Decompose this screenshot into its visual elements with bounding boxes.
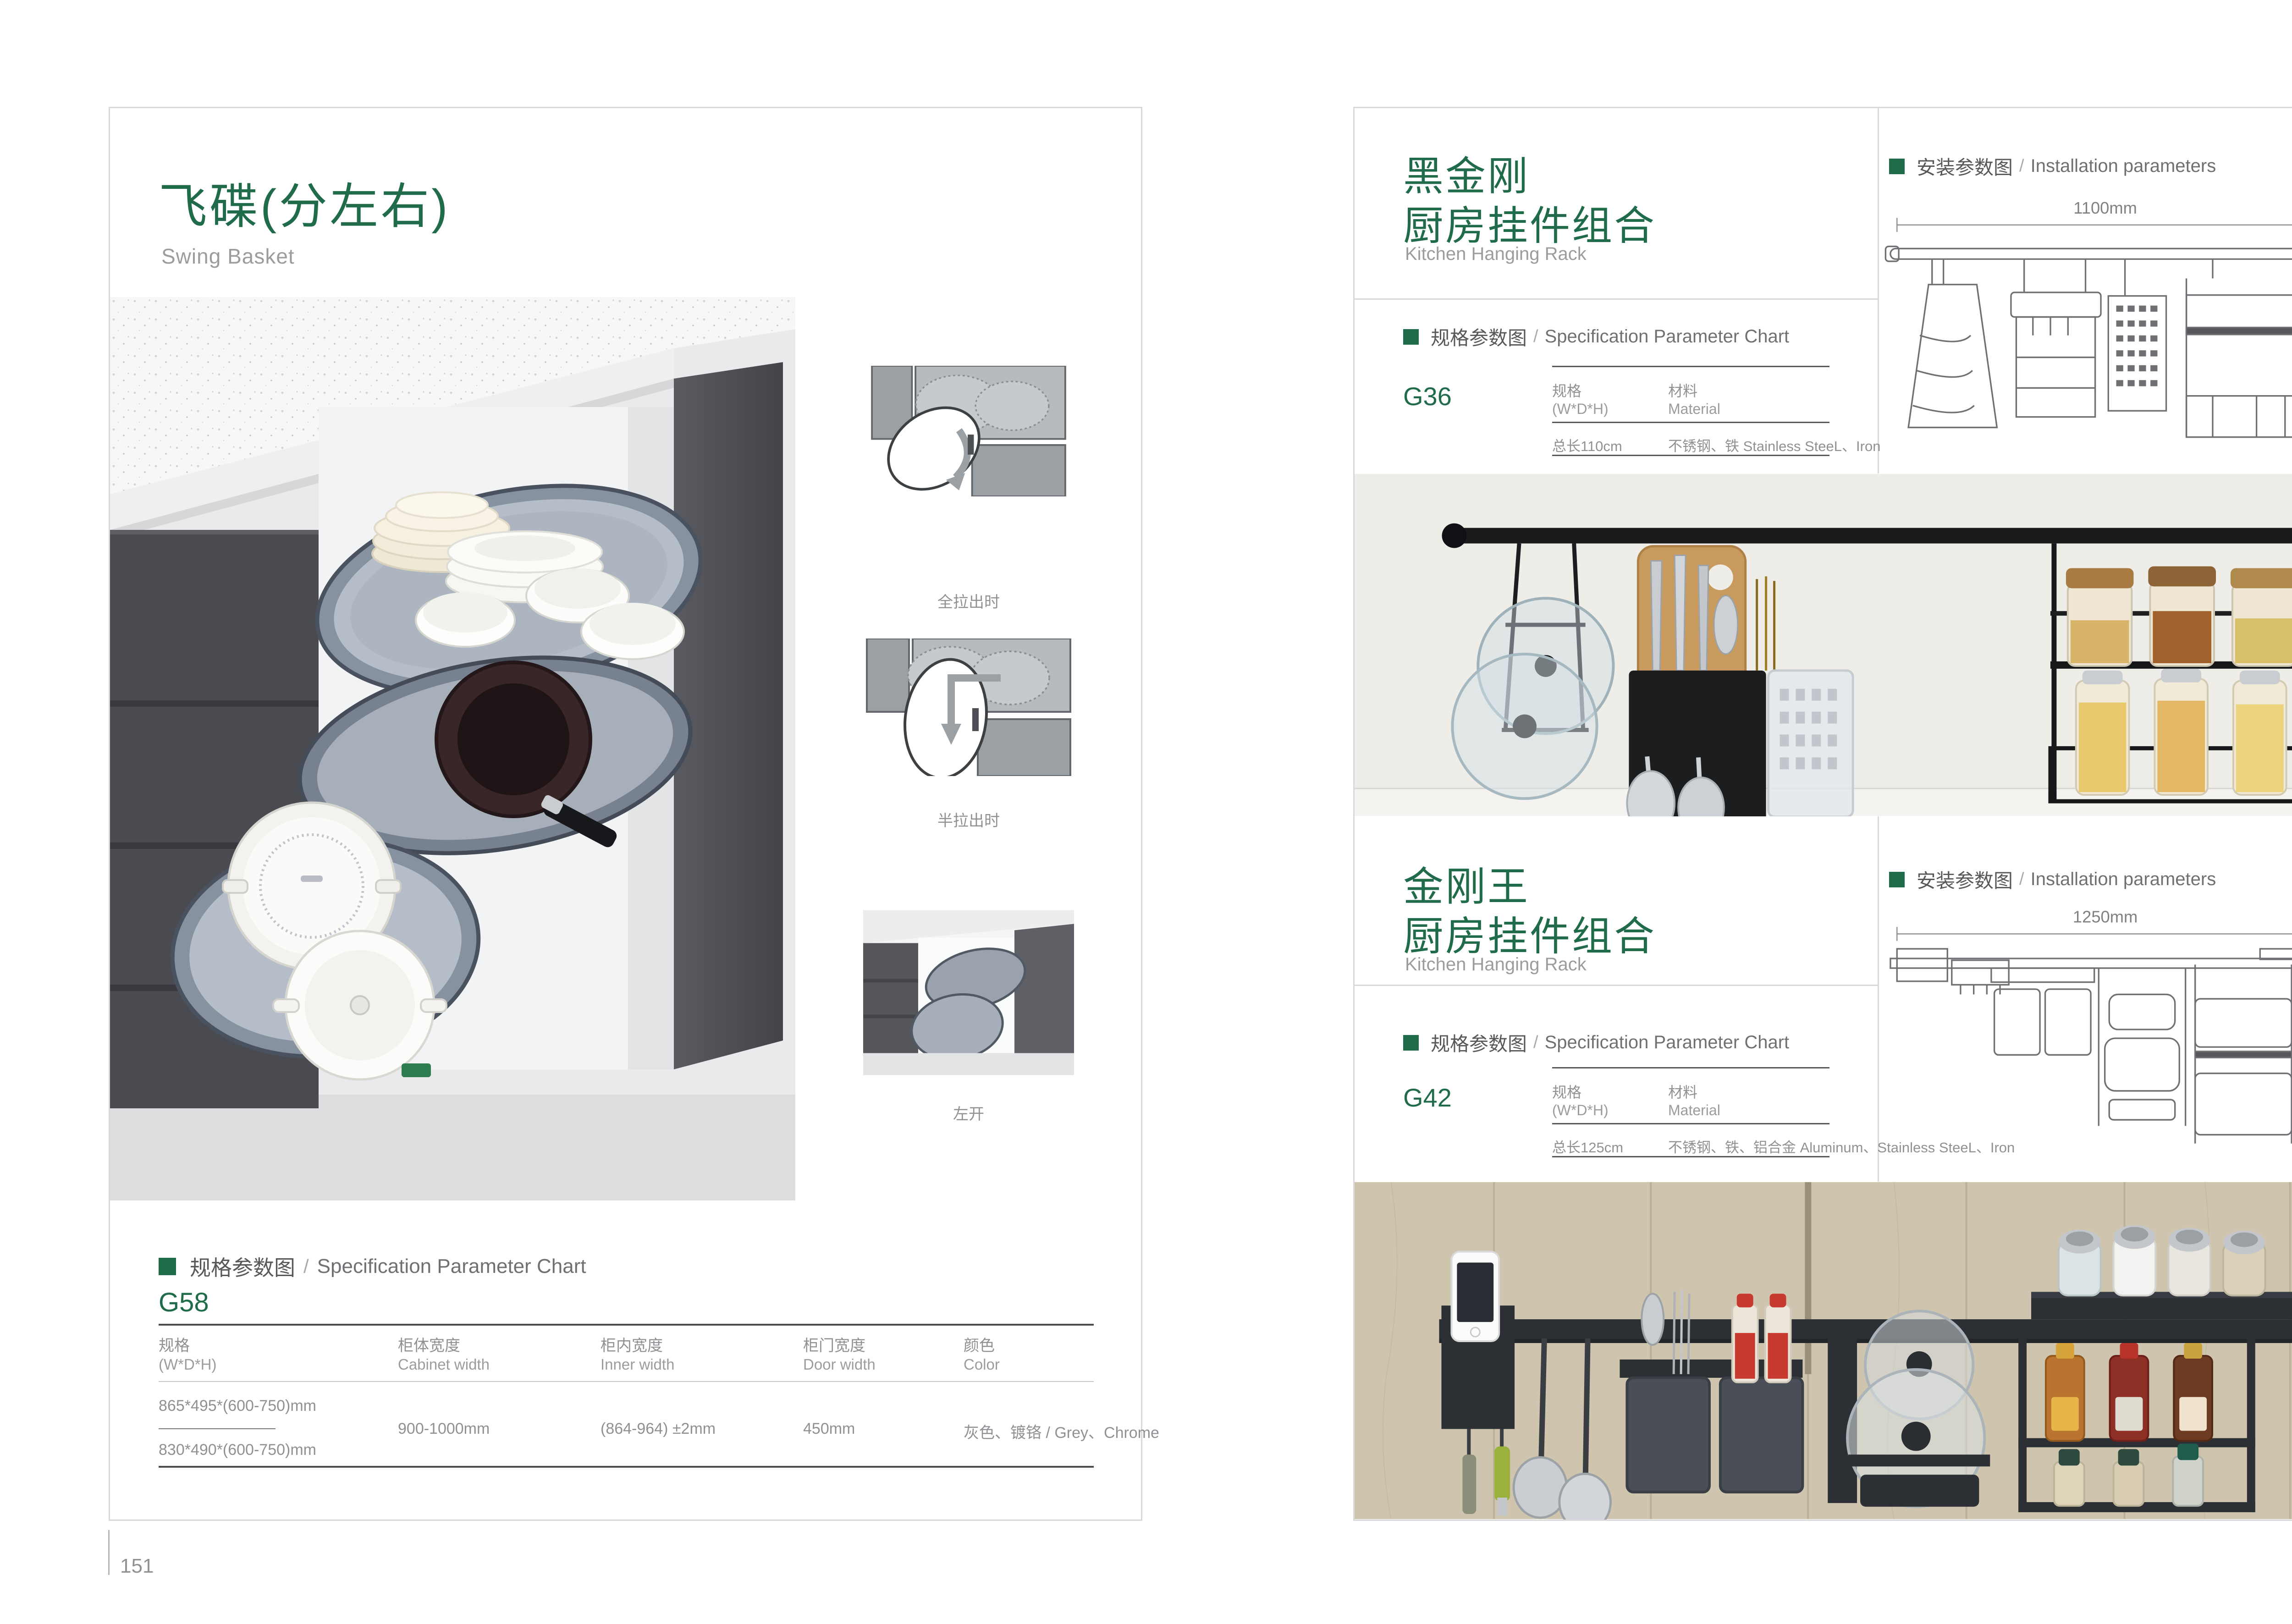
green-square-icon xyxy=(1889,872,1905,887)
s1-table-rule-top xyxy=(1552,366,1829,367)
s2-spec-value: 总长125cm xyxy=(1552,1136,1623,1156)
install-drawing-1: 1100mm xyxy=(1879,191,2292,454)
rack-line-art xyxy=(1885,247,2292,428)
dimension-width xyxy=(1897,927,2292,941)
section1-spec-heading: 规格参数图 / Specification Parameter Chart xyxy=(1403,323,1789,351)
page-title-en: Swing Basket xyxy=(161,244,295,269)
section2-spec-heading: 规格参数图 / Specification Parameter Chart xyxy=(1403,1029,1789,1057)
section1-title-zh-2: 厨房挂件组合 xyxy=(1403,193,1656,252)
pasta-bottles xyxy=(2076,669,2286,795)
s2-col1-en: (W*D*H) xyxy=(1552,1102,1609,1119)
spice-jars xyxy=(2066,566,2292,666)
footer-divider-left xyxy=(108,1530,110,1575)
spec-heading-separator: / xyxy=(1533,1033,1538,1052)
s1-material-value: 不锈钢、铁 Stainless SteeL、Iron xyxy=(1668,435,1880,455)
green-square-icon xyxy=(1403,1035,1419,1051)
install-heading-en: Installation parameters xyxy=(2031,156,2216,176)
install-heading-zh: 安装参数图 xyxy=(1917,865,2013,893)
s1-table-rule-mid xyxy=(1552,422,1829,423)
section2-title-zh-2: 厨房挂件组合 xyxy=(1403,904,1656,962)
basket-holes xyxy=(2116,306,2158,386)
s2-table-rule-mid xyxy=(1552,1123,1829,1124)
sauce-bottles-large xyxy=(2046,1343,2212,1441)
install-drawing-2: 1250mm 430mm xyxy=(1879,907,2292,1152)
spec-heading-en: Specification Parameter Chart xyxy=(1545,326,1790,347)
wood-rack-illustration xyxy=(1355,1182,2292,1519)
spec-value-1: 865*495*(600-750)mm xyxy=(159,1397,316,1415)
catalog-spread: { "colors": { "accent_green": "#1f6b4a",… xyxy=(0,0,2292,1624)
half-pullout-illustration xyxy=(863,639,1074,776)
col-header-color-en: Color xyxy=(964,1356,1000,1373)
section1-model: G36 xyxy=(1403,381,1452,411)
spec-heading-en: Specification Parameter Chart xyxy=(317,1255,586,1278)
spec-chart-heading: 规格参数图 / Specification Parameter Chart xyxy=(159,1251,586,1282)
two-tier-rack xyxy=(2187,278,2292,437)
spec-heading-zh: 规格参数图 xyxy=(190,1251,295,1282)
title-cell-rule-top xyxy=(1355,298,1878,300)
title-cell-rule-bottom xyxy=(1355,985,1878,986)
col-header-cabinet-zh: 柜体宽度 xyxy=(398,1333,460,1355)
pepper-grinders xyxy=(2054,1443,2203,1506)
table-rule-header xyxy=(159,1381,1094,1382)
diagram-full-pullout: 全拉出时 xyxy=(863,366,1074,496)
col-header-door-en: Door width xyxy=(803,1356,876,1373)
green-square-icon xyxy=(159,1258,176,1275)
s1-col2-en: Material xyxy=(1668,401,1720,418)
black-rack-illustration xyxy=(1355,473,2292,816)
dimension-width xyxy=(1897,218,2292,232)
rail-system xyxy=(1439,1319,2292,1343)
rack-line-art xyxy=(1890,949,2292,1144)
col-header-color-zh: 颜色 xyxy=(964,1333,995,1355)
s1-spec-value: 总长110cm xyxy=(1552,435,1622,455)
catalog-page-right: 黑金刚 厨房挂件组合 Kitchen Hanging Rack 规格参数图 / … xyxy=(1353,107,2292,1521)
cabinet-width-value: 900-1000mm xyxy=(398,1420,490,1438)
full-pullout-illustration xyxy=(863,366,1074,496)
spec-heading-zh: 规格参数图 xyxy=(1431,1029,1527,1057)
brand-tag xyxy=(402,1063,431,1077)
diagram-left-open: 左开 xyxy=(863,909,1074,1076)
spec-heading-separator: / xyxy=(303,1255,309,1277)
table-rule-top xyxy=(159,1324,1094,1326)
s2-table-rule-top xyxy=(1552,1067,1829,1068)
diagram-label: 半拉出时 xyxy=(863,808,1074,831)
green-square-icon xyxy=(1889,159,1905,174)
diagram-label: 全拉出时 xyxy=(863,589,1074,612)
diagram-half-pullout: 半拉出时 xyxy=(863,639,1074,776)
spec-heading-zh: 规格参数图 xyxy=(1431,323,1527,351)
s1-col1-en: (W*D*H) xyxy=(1552,401,1609,418)
col-header-inner-en: Inner width xyxy=(601,1356,674,1373)
s2-col1-zh: 规格 xyxy=(1552,1081,1581,1102)
inner-width-value: (864-964) ±2mm xyxy=(601,1420,716,1438)
floor xyxy=(110,1095,795,1200)
swing-basket-photo xyxy=(110,297,795,1200)
col-header-door-zh: 柜门宽度 xyxy=(803,1333,865,1355)
col-header-inner-zh: 柜内宽度 xyxy=(601,1333,663,1355)
column-divider-top xyxy=(1878,108,1879,473)
section2-install-heading: 安装参数图 / Installation parameters xyxy=(1889,865,2216,893)
swing-basket-illustration xyxy=(110,297,795,1200)
wood-rack-photo xyxy=(1355,1182,2292,1519)
section2-title-en: Kitchen Hanging Rack xyxy=(1405,954,1587,975)
diagram-label: 左开 xyxy=(863,1101,1074,1124)
s1-col2-zh: 材料 xyxy=(1668,380,1697,401)
right-cabinet-panel xyxy=(674,362,783,1069)
install-heading-en: Installation parameters xyxy=(2031,869,2216,890)
page-title-zh: 飞碟(分左右) xyxy=(159,167,450,237)
section1-install-heading: 安装参数图 / Installation parameters xyxy=(1889,152,2216,180)
plank-seam xyxy=(1805,1182,1811,1374)
install-heading-separator: / xyxy=(2019,870,2024,889)
spec-heading-separator: / xyxy=(1533,327,1538,347)
model-code: G58 xyxy=(159,1287,209,1318)
column-divider-bottom xyxy=(1878,816,1879,1182)
green-square-icon xyxy=(1403,329,1419,345)
dim-width-label: 1100mm xyxy=(2073,198,2137,217)
section2-install-diagram: 1250mm 430mm xyxy=(1879,907,2292,1168)
black-rack-photo xyxy=(1355,473,2292,816)
spec-heading-en: Specification Parameter Chart xyxy=(1545,1032,1790,1053)
lid-holder xyxy=(1828,1311,1990,1507)
section2-model: G42 xyxy=(1403,1083,1452,1112)
dim-width-label: 1250mm xyxy=(2073,908,2138,926)
col-header-spec-en: (W*D*H) xyxy=(159,1356,216,1373)
s2-table-rule-bottom xyxy=(1552,1156,1829,1157)
s1-table-rule-bottom xyxy=(1552,455,1829,456)
col-header-cabinet-en: Cabinet width xyxy=(398,1356,490,1373)
left-open-illustration xyxy=(863,909,1074,1076)
s2-col2-en: Material xyxy=(1668,1102,1720,1119)
install-heading-separator: / xyxy=(2019,156,2024,176)
spec-value-2: 830*490*(600-750)mm xyxy=(159,1441,316,1459)
section1-install-diagram: 1100mm xyxy=(1879,191,2292,466)
door-width-value: 450mm xyxy=(803,1420,855,1438)
table-rule-bottom xyxy=(159,1466,1094,1468)
s2-col2-zh: 材料 xyxy=(1668,1081,1697,1102)
spec-divider xyxy=(159,1428,275,1429)
section1-title-en: Kitchen Hanging Rack xyxy=(1405,244,1587,264)
install-heading-zh: 安装参数图 xyxy=(1917,152,2013,180)
catalog-page-left: 飞碟(分左右) Swing Basket xyxy=(109,107,1142,1521)
diagram-column: 全拉出时 半拉出时 xyxy=(795,297,1141,1200)
page-number-left: 151 xyxy=(120,1555,154,1578)
s1-col1-zh: 规格 xyxy=(1552,380,1581,401)
col-header-spec-zh: 规格 xyxy=(159,1333,190,1355)
color-value: 灰色、镀铬 / Grey、Chrome xyxy=(964,1420,1159,1442)
